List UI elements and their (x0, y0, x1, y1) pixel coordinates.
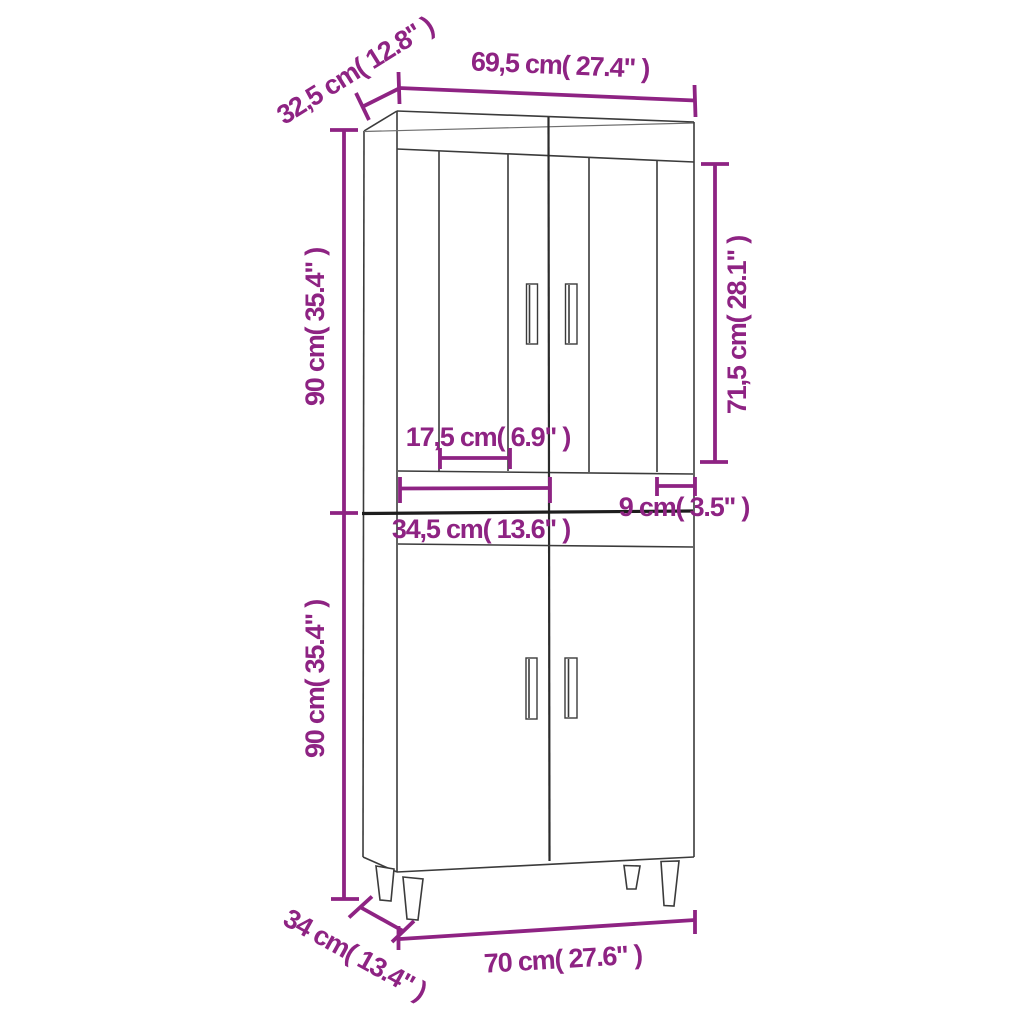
label-lower-height: 90 cm( 35.4" ) (300, 600, 330, 758)
dimension-annotations: 32,5 cm( 12.8" ) 69,5 cm( 27.4" ) 90 cm(… (271, 10, 752, 1006)
dim-tick (695, 85, 696, 117)
label-door-height: 71,5 cm( 28.1" ) (722, 236, 752, 414)
cabinet-bottom-edge (397, 857, 694, 872)
dim-line (362, 88, 400, 107)
cabinet-dimension-figure: 32,5 cm( 12.8" ) 69,5 cm( 27.4" ) 90 cm(… (0, 0, 1024, 1024)
label-top-width: 69,5 cm( 27.4" ) (470, 46, 650, 83)
upper-door-bottom-edge (398, 471, 693, 474)
dim-line (360, 907, 403, 931)
lower-left-door-handle (526, 658, 537, 719)
dimension-diagram: 32,5 cm( 12.8" ) 69,5 cm( 27.4" ) 90 cm(… (0, 0, 1024, 1024)
lower-right-door-handle (565, 658, 577, 718)
upper-left-door-handle (527, 284, 538, 344)
dim-top-width: 69,5 cm( 27.4" ) (399, 46, 696, 117)
handle-body (565, 658, 577, 718)
upper-right-door-handle (566, 284, 578, 344)
handle-body (566, 284, 578, 344)
cabinet-legs (376, 861, 679, 920)
cabinet-leg (376, 866, 394, 901)
dim-right-stile: 9 cm( 3.5" ) (619, 477, 750, 522)
dim-tick (399, 72, 400, 104)
handle-body (526, 658, 537, 719)
upper-top-rail (397, 149, 694, 162)
label-base-width: 70 cm( 27.6" ) (483, 939, 643, 978)
label-upper-height: 90 cm( 35.4" ) (300, 248, 330, 406)
dim-line (400, 920, 695, 939)
dim-base-width: 70 cm( 27.6" ) (399, 910, 696, 979)
cabinet-top-back-edge (364, 123, 694, 132)
cabinet-leg (403, 877, 423, 920)
dim-line (400, 488, 550, 489)
lower-door-top-edge (398, 544, 693, 547)
label-right-stile: 9 cm( 3.5" ) (619, 492, 750, 522)
cabinet-leg (661, 861, 679, 906)
dim-door-height: 71,5 cm( 28.1" ) (700, 164, 752, 462)
handle-body (527, 284, 538, 344)
dim-left-heights: 90 cm( 35.4" ) 90 cm( 35.4" ) (300, 130, 359, 899)
label-half-width: 34,5 cm( 13.6" ) (392, 514, 570, 544)
cabinet-top-front-edge (397, 111, 694, 122)
label-panel-width: 17,5 cm( 6.9" ) (406, 422, 571, 452)
dim-line (399, 88, 695, 101)
dim-panel-width: 17,5 cm( 6.9" ) (406, 422, 571, 469)
cabinet-leg (624, 866, 640, 890)
cabinet-back-left-edge (363, 131, 364, 857)
cabinet-top-left-edge (364, 111, 397, 131)
